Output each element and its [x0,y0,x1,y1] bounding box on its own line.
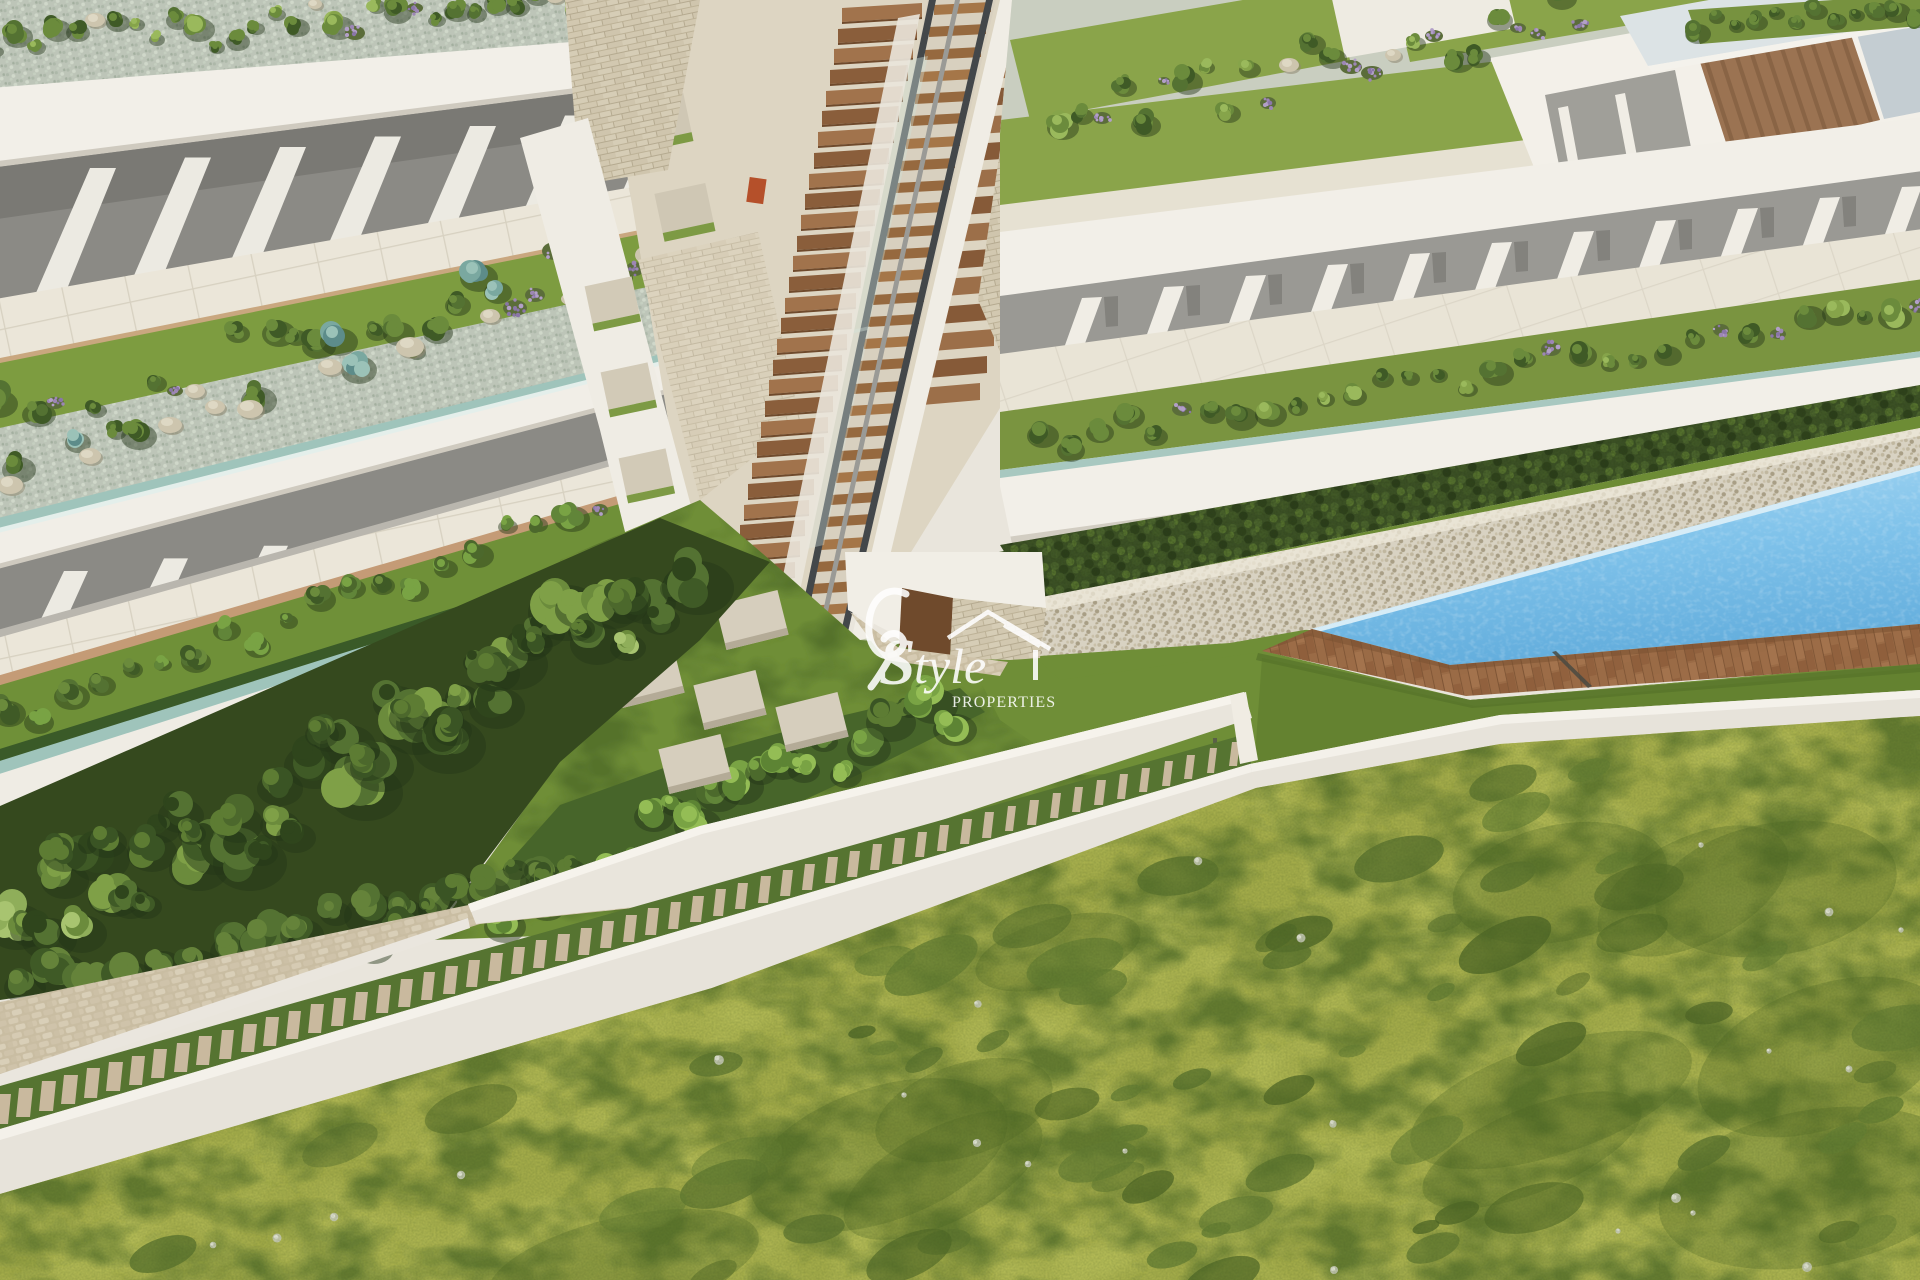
svg-text:S: S [879,626,916,699]
svg-text:PROPERTIES: PROPERTIES [952,694,1056,711]
svg-text:tyle: tyle [914,638,986,694]
